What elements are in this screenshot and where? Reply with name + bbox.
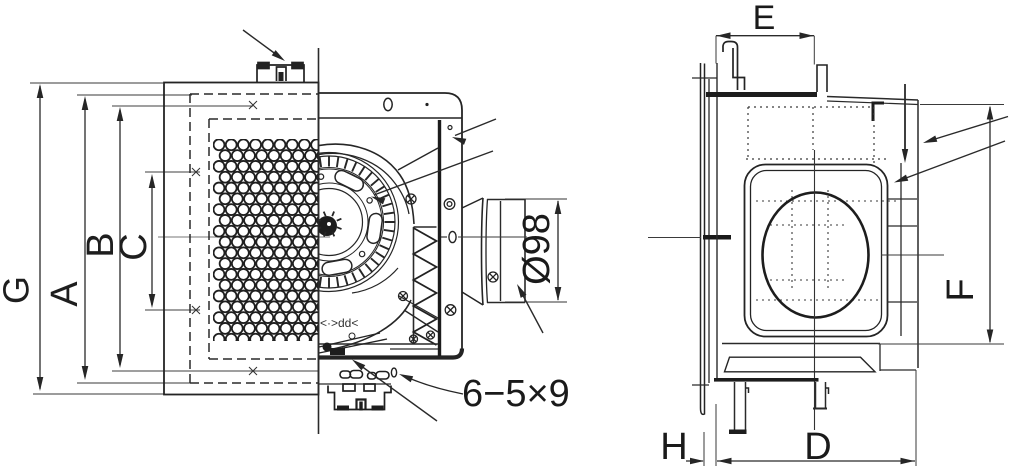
svg-text:E: E: [753, 0, 776, 37]
svg-text:F: F: [940, 278, 982, 301]
svg-text:C: C: [113, 233, 155, 260]
svg-text:Ø98: Ø98: [516, 213, 558, 285]
svg-text:H: H: [660, 426, 687, 468]
svg-text:A: A: [44, 281, 86, 307]
svg-text:<·>dd<: <·>dd<: [320, 316, 358, 330]
svg-text:D: D: [804, 426, 831, 468]
svg-text:6−5×9: 6−5×9: [462, 373, 570, 415]
svg-text:G: G: [0, 276, 37, 304]
